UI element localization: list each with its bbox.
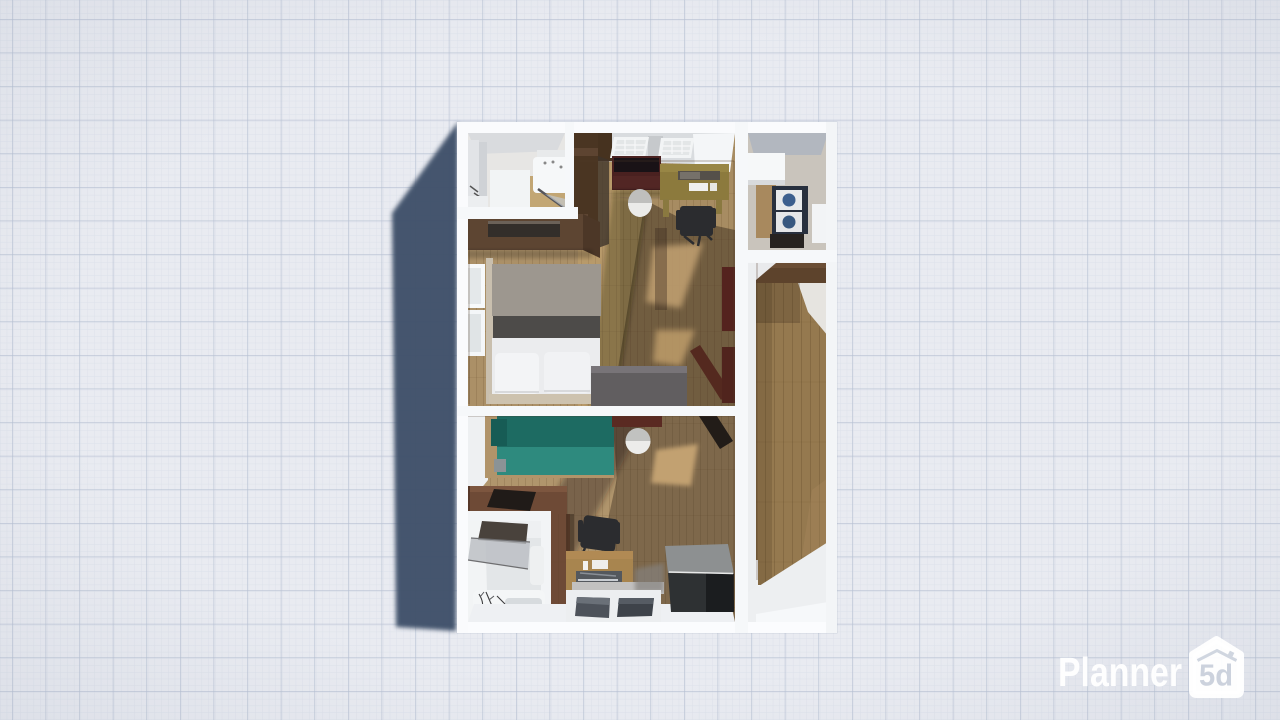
svg-text:5d: 5d <box>1199 658 1233 693</box>
svg-text:Planner: Planner <box>1058 649 1182 695</box>
